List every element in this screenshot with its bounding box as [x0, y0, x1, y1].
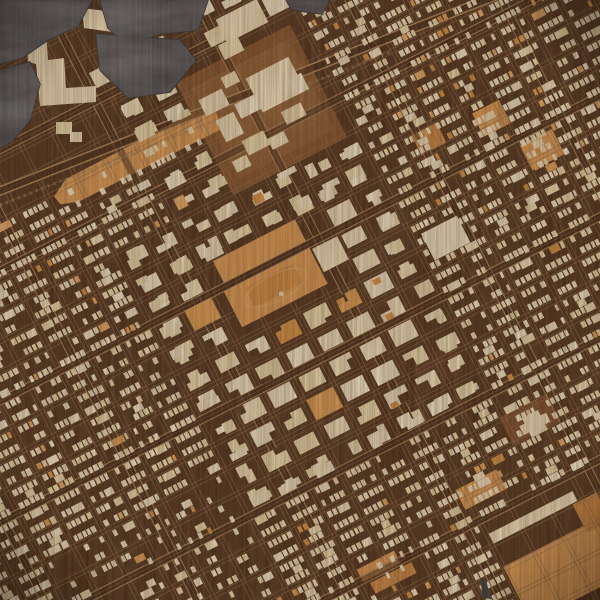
vignette-overlay — [0, 0, 600, 600]
map-viewport — [0, 0, 600, 600]
map-canvas — [0, 0, 600, 600]
